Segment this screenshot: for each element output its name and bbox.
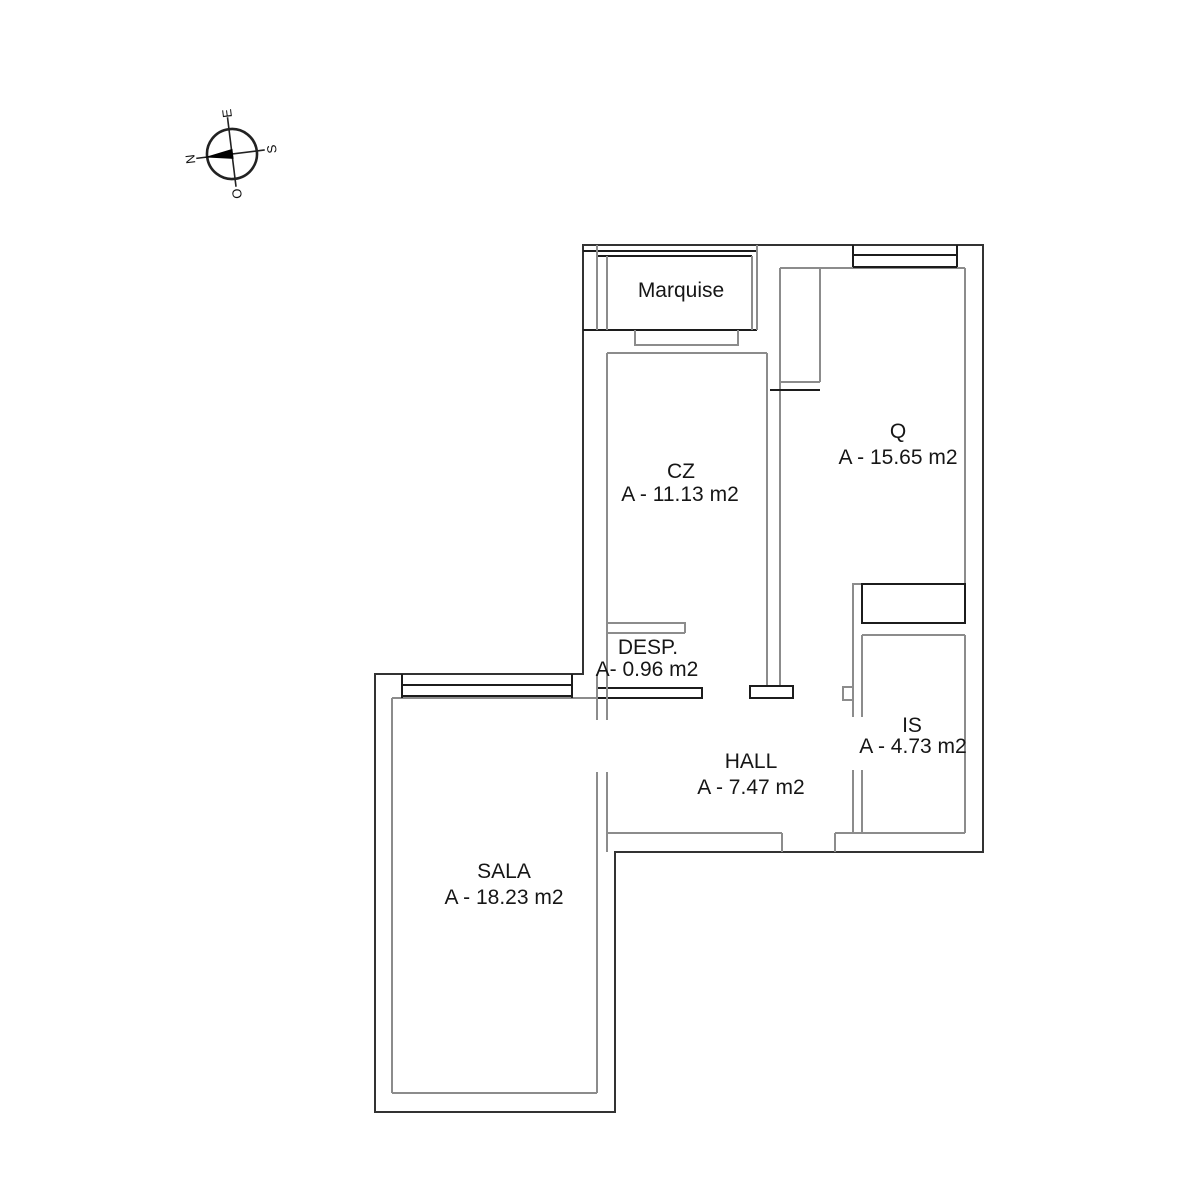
hall-walls	[607, 833, 862, 852]
hall-area-label: A - 7.47 m2	[697, 776, 804, 799]
marquise-vent	[635, 330, 738, 345]
hall-label: HALL	[725, 750, 778, 773]
compass-letter-west: O	[229, 188, 245, 200]
q-area-label: A - 15.65 m2	[838, 446, 957, 469]
q-is-shelf	[862, 584, 965, 623]
marquise-label: Marquise	[638, 279, 724, 302]
sala-window	[402, 674, 572, 698]
desp-top-wall	[607, 623, 685, 633]
compass-letter-south: S	[264, 144, 280, 155]
sala-walls	[392, 674, 607, 1093]
sala-label: SALA	[477, 860, 531, 883]
floor-plan-canvas: N E S O	[0, 0, 1200, 1200]
is-door-jamb	[843, 687, 853, 700]
cz-door-jamb	[750, 686, 793, 698]
sala-area-label: A - 18.23 m2	[444, 886, 563, 909]
desp-area-label: A- 0.96 m2	[596, 658, 699, 681]
cz-area-label: A - 11.13 m2	[621, 483, 739, 506]
is-label: IS	[902, 714, 922, 737]
sala-right-wall	[597, 674, 607, 1093]
desp-bottom-wall	[597, 688, 702, 698]
q-wardrobe	[780, 268, 820, 382]
q-window	[853, 245, 957, 267]
is-area-label: A - 4.73 m2	[859, 735, 966, 758]
desp-label: DESP.	[618, 636, 678, 659]
cz-label: CZ	[667, 460, 695, 483]
q-walls	[770, 245, 965, 623]
compass-letter-east: E	[219, 108, 235, 119]
compass-rose-icon: N E S O	[177, 103, 284, 205]
compass-letter-north: N	[182, 154, 198, 165]
q-label: Q	[890, 420, 906, 443]
floor-plan-page: N E S O	[0, 0, 1200, 1200]
